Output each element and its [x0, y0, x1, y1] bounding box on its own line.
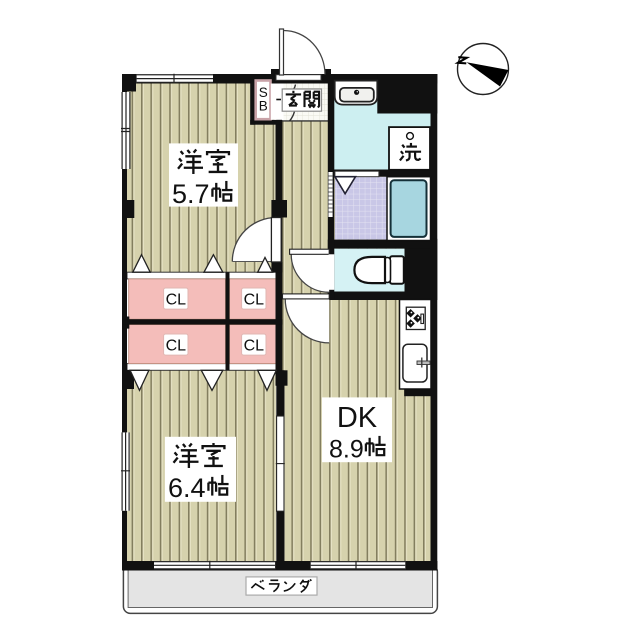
svg-text:CL: CL — [166, 292, 187, 309]
svg-text:S: S — [259, 85, 268, 100]
svg-text:CL: CL — [244, 292, 265, 309]
svg-text:CL: CL — [166, 338, 187, 355]
svg-text:CL: CL — [244, 338, 265, 355]
svg-text:6.4: 6.4 — [168, 473, 206, 503]
svg-text:5.7: 5.7 — [172, 179, 210, 209]
svg-text:DK: DK — [337, 402, 378, 434]
svg-text:8.9: 8.9 — [329, 436, 364, 464]
svg-text:B: B — [259, 99, 268, 114]
